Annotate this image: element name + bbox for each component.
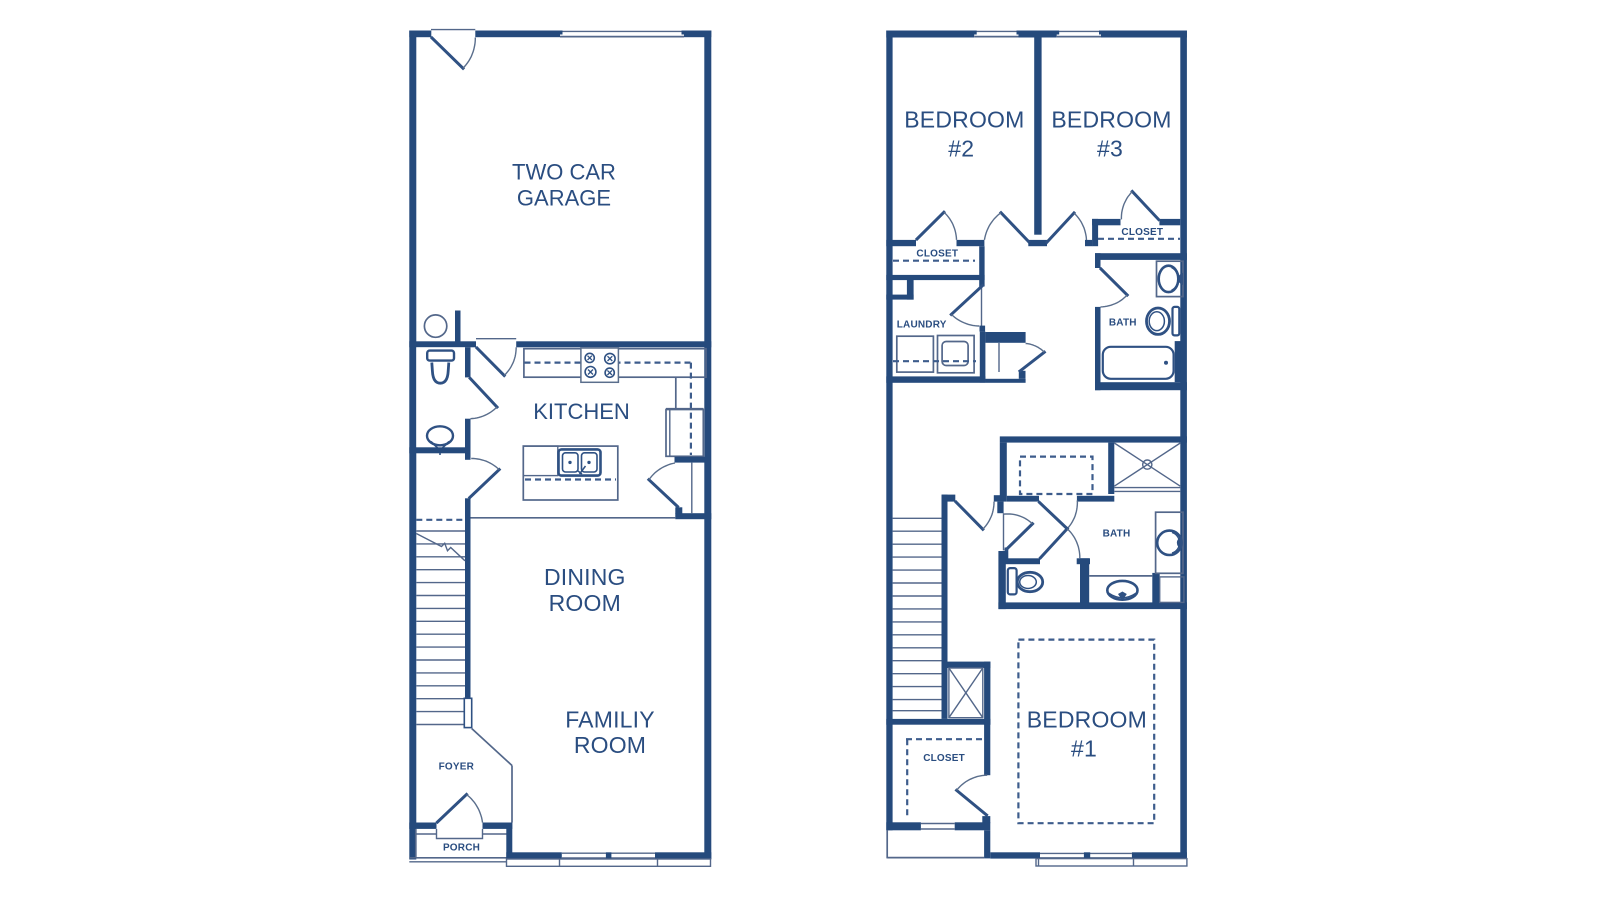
svg-text:CLOSET: CLOSET: [916, 249, 958, 260]
svg-text:DINING: DINING: [544, 564, 626, 590]
svg-text:FOYER: FOYER: [439, 762, 475, 773]
svg-text:PORCH: PORCH: [443, 843, 480, 854]
svg-text:KITCHEN: KITCHEN: [533, 399, 630, 424]
svg-text:GARAGE: GARAGE: [517, 186, 611, 211]
svg-text:BEDROOM: BEDROOM: [1027, 706, 1147, 732]
svg-text:BEDROOM: BEDROOM: [1051, 106, 1171, 132]
svg-text:BATH: BATH: [1109, 317, 1137, 328]
svg-text:#3: #3: [1097, 135, 1123, 161]
svg-text:CLOSET: CLOSET: [1121, 227, 1163, 238]
svg-text:CLOSET: CLOSET: [923, 753, 965, 764]
svg-text:ROOM: ROOM: [549, 590, 621, 616]
svg-text:LAUNDRY: LAUNDRY: [897, 319, 947, 330]
svg-text:#2: #2: [948, 135, 974, 161]
svg-text:BATH: BATH: [1103, 528, 1131, 539]
svg-text:BEDROOM: BEDROOM: [904, 106, 1024, 132]
svg-text:#1: #1: [1071, 735, 1097, 761]
svg-text:ROOM: ROOM: [574, 732, 646, 758]
svg-text:TWO CAR: TWO CAR: [512, 160, 616, 185]
svg-text:FAMILIY: FAMILIY: [565, 707, 655, 733]
